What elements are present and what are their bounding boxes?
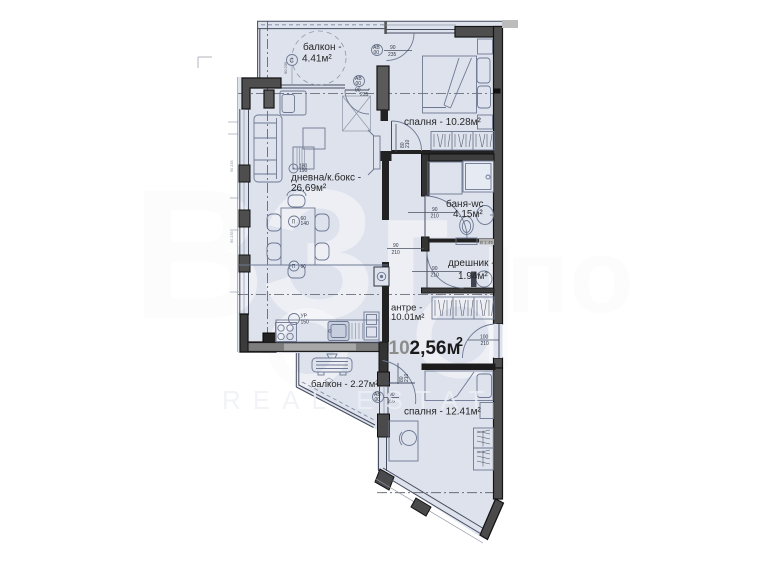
svg-text:140: 140 bbox=[301, 221, 310, 227]
svg-text:90 235: 90 235 bbox=[283, 61, 288, 74]
svg-text:2: 2 bbox=[456, 335, 463, 349]
svg-text:00: 00 bbox=[374, 50, 380, 56]
svg-text:дрешник -: дрешник - bbox=[448, 258, 495, 269]
svg-text:90: 90 bbox=[432, 207, 438, 213]
svg-text:спалня - 10.28м²: спалня - 10.28м² bbox=[404, 117, 482, 128]
svg-text:4.41м²: 4.41м² bbox=[302, 54, 332, 65]
svg-text:210: 210 bbox=[431, 214, 440, 220]
svg-text:90: 90 bbox=[390, 45, 396, 51]
svg-text:дневна/к.бокс -: дневна/к.бокс - bbox=[291, 172, 361, 184]
svg-text:П: П bbox=[292, 220, 296, 226]
svg-text:235: 235 bbox=[388, 52, 397, 58]
svg-text:100: 100 bbox=[480, 335, 489, 341]
svg-text:90 235: 90 235 bbox=[230, 160, 234, 172]
svg-text:10.01м²: 10.01м² bbox=[391, 312, 424, 323]
svg-text:В 1.45: В 1.45 bbox=[480, 240, 494, 245]
svg-text:210: 210 bbox=[481, 341, 490, 347]
svg-text:210: 210 bbox=[431, 273, 440, 279]
svg-text:210: 210 bbox=[405, 139, 411, 148]
svg-text:235: 235 bbox=[360, 92, 369, 98]
svg-text:10: 10 bbox=[389, 338, 410, 359]
svg-text:по: по bbox=[506, 218, 634, 335]
svg-text:REAL ESTAT: REAL ESTAT bbox=[222, 385, 496, 415]
svg-text:90: 90 bbox=[393, 243, 399, 249]
svg-text:С: С bbox=[290, 59, 295, 65]
svg-text:00: 00 bbox=[356, 81, 362, 87]
svg-text:1.94м²: 1.94м² bbox=[458, 271, 488, 282]
svg-text:4.15м²: 4.15м² bbox=[453, 209, 483, 220]
svg-text:балкон -: балкон - bbox=[303, 41, 342, 53]
svg-text:90 235: 90 235 bbox=[230, 231, 234, 243]
svg-text:2,56м: 2,56м bbox=[410, 338, 461, 359]
svg-text:150: 150 bbox=[301, 320, 310, 326]
svg-text:90: 90 bbox=[432, 266, 438, 272]
svg-text:210: 210 bbox=[404, 373, 410, 382]
svg-text:26.69м²: 26.69м² bbox=[291, 183, 327, 194]
svg-text:210: 210 bbox=[392, 250, 401, 256]
